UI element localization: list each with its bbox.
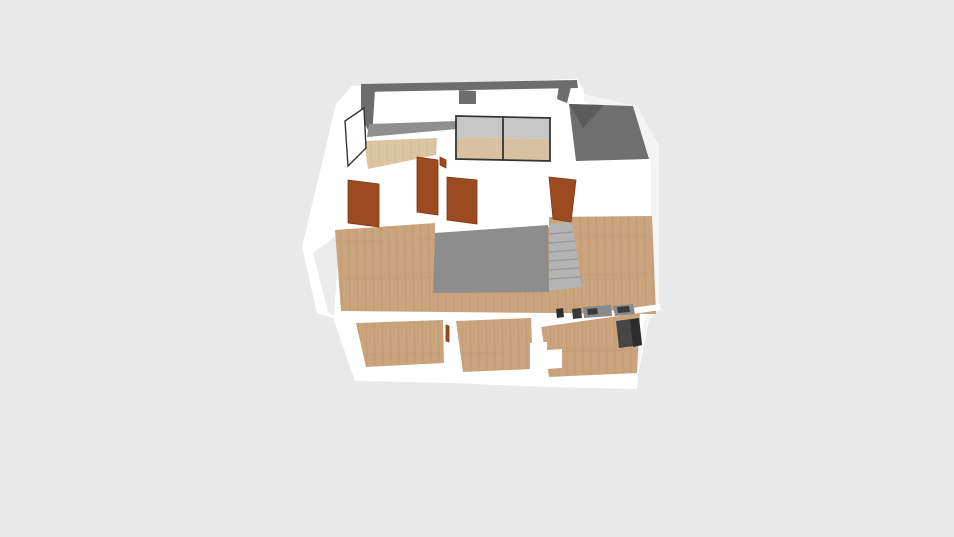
lower-middle-room-floor: [456, 318, 533, 372]
kitchen-cooktop: [572, 308, 582, 319]
kitchen-small-appliance: [556, 308, 564, 318]
staircase-group: [433, 211, 582, 293]
door-sliver-lower: [446, 325, 449, 342]
kitchen-counter-right-item: [617, 306, 630, 313]
staircase-enclosure-face: [433, 225, 549, 293]
back-wall-window-mullion: [459, 90, 476, 104]
sliding-glass-door-group: [456, 116, 550, 161]
kitchen-sink-basin: [587, 308, 598, 315]
door-upper-closet: [417, 157, 438, 215]
door-center-room: [447, 177, 477, 224]
floorplan-3d-viewport[interactable]: [0, 0, 954, 537]
lower-left-room-floor: [356, 320, 444, 367]
floorplan-svg: [0, 0, 954, 537]
door-stair-landing: [549, 177, 576, 222]
door-left-room: [348, 180, 379, 227]
